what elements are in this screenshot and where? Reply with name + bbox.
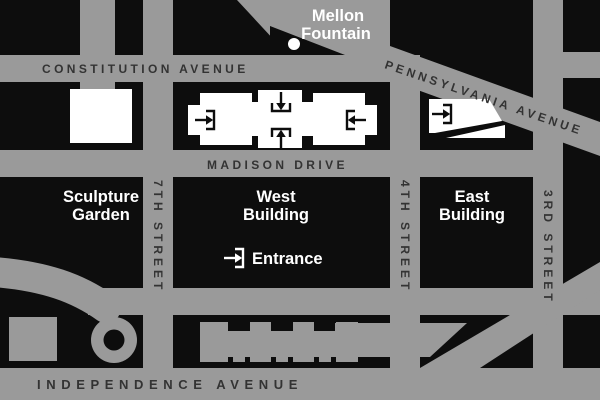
svg-text:Building: Building bbox=[439, 206, 505, 224]
mellon-fountain-dot bbox=[288, 38, 300, 50]
air-and-space-building bbox=[200, 322, 358, 362]
seventh-street-label: 7TH STREET bbox=[151, 180, 165, 293]
svg-text:East: East bbox=[455, 188, 490, 206]
third-street-label: 3RD STREET bbox=[541, 190, 555, 305]
sculpture-garden-label: Sculpture Garden bbox=[63, 188, 139, 224]
white-square-building bbox=[70, 89, 132, 143]
madison-drive-label: MADISON DRIVE bbox=[207, 158, 348, 172]
entrance-label: Entrance bbox=[252, 250, 323, 268]
nga-area-map: CONSTITUTION AVENUE PENNSYLVANIA AVENUE … bbox=[0, 0, 600, 400]
mellon-fountain-label: Mellon Fountain bbox=[301, 7, 371, 43]
svg-text:Fountain: Fountain bbox=[301, 25, 371, 43]
constitution-avenue-label: CONSTITUTION AVENUE bbox=[42, 62, 249, 76]
svg-text:Building: Building bbox=[243, 206, 309, 224]
svg-text:West: West bbox=[256, 188, 296, 206]
west-building-footprint bbox=[188, 90, 377, 148]
svg-text:Sculpture: Sculpture bbox=[63, 188, 139, 206]
hirshhorn-donut-building bbox=[91, 317, 137, 363]
svg-text:Mellon: Mellon bbox=[312, 7, 364, 25]
independence-avenue-label: INDEPENDENCE AVENUE bbox=[37, 377, 303, 392]
square-building bbox=[9, 317, 57, 361]
fourth-street-label: 4TH STREET bbox=[398, 180, 412, 293]
constitution-avenue-east-road bbox=[563, 52, 600, 78]
svg-text:Garden: Garden bbox=[72, 206, 130, 224]
